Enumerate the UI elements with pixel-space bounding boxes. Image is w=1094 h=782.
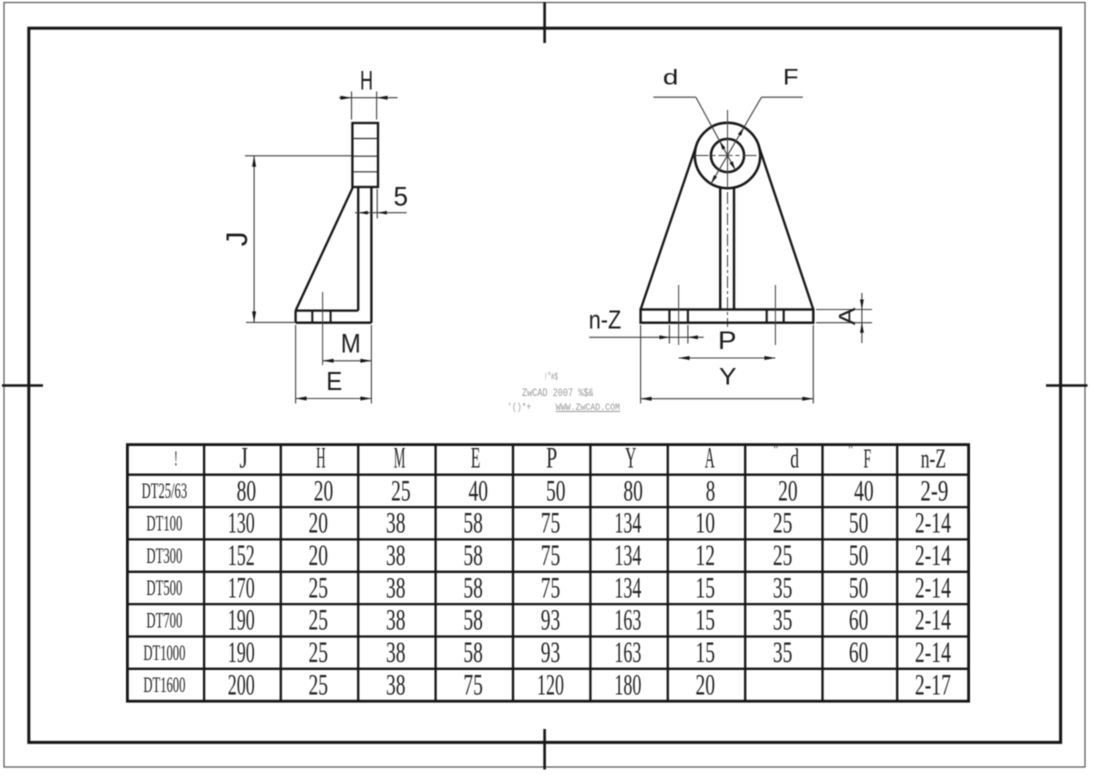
svg-text:38: 38 xyxy=(386,539,406,572)
svg-text:20: 20 xyxy=(309,507,329,540)
svg-text:DT300: DT300 xyxy=(146,543,182,568)
svg-text:120: 120 xyxy=(537,668,564,701)
svg-text:Y: Y xyxy=(719,364,737,391)
svg-text:35: 35 xyxy=(773,636,793,669)
svg-text:20: 20 xyxy=(309,539,329,572)
svg-text:60: 60 xyxy=(849,636,869,669)
svg-text:134: 134 xyxy=(614,571,641,604)
svg-text:Y: Y xyxy=(625,442,636,475)
svg-text:58: 58 xyxy=(463,636,483,669)
svg-text:M: M xyxy=(341,328,361,358)
svg-text:40: 40 xyxy=(469,474,489,507)
svg-text:DT100: DT100 xyxy=(146,511,182,536)
svg-text:": " xyxy=(848,442,853,459)
svg-text:DT500: DT500 xyxy=(146,575,182,600)
svg-text:": " xyxy=(773,442,778,459)
svg-text:2-14: 2-14 xyxy=(915,636,951,669)
svg-text:190: 190 xyxy=(228,604,255,637)
svg-text:35: 35 xyxy=(773,571,793,604)
svg-text:J: J xyxy=(221,231,254,246)
svg-text:38: 38 xyxy=(386,636,406,669)
svg-text:58: 58 xyxy=(463,571,483,604)
svg-text:2-14: 2-14 xyxy=(915,571,951,604)
svg-text:152: 152 xyxy=(228,539,255,572)
svg-text:10: 10 xyxy=(696,507,716,540)
svg-text:80: 80 xyxy=(237,474,257,507)
svg-text:P: P xyxy=(718,327,737,355)
svg-text:190: 190 xyxy=(228,636,255,669)
svg-text:25: 25 xyxy=(309,604,329,637)
svg-text:20: 20 xyxy=(778,474,798,507)
svg-text:38: 38 xyxy=(386,668,406,701)
svg-text:5: 5 xyxy=(393,181,408,211)
svg-text:n-Z: n-Z xyxy=(589,305,622,335)
svg-text:25: 25 xyxy=(309,668,329,701)
svg-text:P: P xyxy=(546,442,557,475)
svg-text:50: 50 xyxy=(849,571,869,604)
svg-text:50: 50 xyxy=(849,539,869,572)
svg-text:2-14: 2-14 xyxy=(915,604,951,637)
svg-text:75: 75 xyxy=(541,507,561,540)
svg-text:35: 35 xyxy=(773,604,793,637)
svg-text:F: F xyxy=(863,444,871,474)
svg-text:H: H xyxy=(316,442,326,475)
svg-text:180: 180 xyxy=(614,668,641,701)
svg-text:58: 58 xyxy=(463,507,483,540)
svg-text:!: ! xyxy=(174,447,178,471)
svg-text:15: 15 xyxy=(696,636,716,669)
svg-text:d: d xyxy=(663,67,679,90)
svg-text:n-Z: n-Z xyxy=(921,444,946,474)
svg-text:E: E xyxy=(326,366,342,396)
svg-text:163: 163 xyxy=(614,604,641,637)
svg-text:DT700: DT700 xyxy=(146,608,182,633)
svg-text:M: M xyxy=(394,442,406,475)
svg-text:20: 20 xyxy=(696,668,716,701)
svg-text:58: 58 xyxy=(463,604,483,637)
svg-text:58: 58 xyxy=(463,539,483,572)
svg-text:!"#$: !"#$ xyxy=(544,372,558,384)
svg-text:15: 15 xyxy=(696,604,716,637)
svg-text:DT1600: DT1600 xyxy=(143,672,185,697)
svg-text:50: 50 xyxy=(849,507,869,540)
svg-text:WWW.ZwCAD.COM: WWW.ZwCAD.COM xyxy=(556,403,620,414)
svg-text:2-17: 2-17 xyxy=(915,668,951,701)
svg-text:75: 75 xyxy=(541,571,561,604)
svg-text:d: d xyxy=(790,444,799,474)
svg-text:25: 25 xyxy=(773,539,793,572)
svg-text:50: 50 xyxy=(546,474,566,507)
svg-text:20: 20 xyxy=(314,474,334,507)
svg-text:93: 93 xyxy=(541,636,561,669)
svg-text:170: 170 xyxy=(228,571,255,604)
svg-text:E: E xyxy=(471,442,481,475)
svg-text:8: 8 xyxy=(706,474,716,507)
svg-text:38: 38 xyxy=(386,571,406,604)
svg-text:38: 38 xyxy=(386,604,406,637)
svg-text:25: 25 xyxy=(309,571,329,604)
svg-text:80: 80 xyxy=(623,474,643,507)
svg-text:25: 25 xyxy=(773,507,793,540)
svg-text:15: 15 xyxy=(696,571,716,604)
svg-text:25: 25 xyxy=(391,474,411,507)
svg-text:163: 163 xyxy=(614,636,641,669)
svg-text:A: A xyxy=(834,307,860,325)
svg-text:ZwCAD 2007 %$&: ZwCAD 2007 %$& xyxy=(522,388,594,400)
svg-text:F: F xyxy=(783,65,799,90)
svg-text:A: A xyxy=(705,442,715,475)
svg-text:J: J xyxy=(240,442,249,475)
svg-text:75: 75 xyxy=(541,539,561,572)
svg-text:2-14: 2-14 xyxy=(915,539,951,572)
svg-text:2-9: 2-9 xyxy=(920,474,948,507)
svg-text:200: 200 xyxy=(228,668,255,701)
svg-text:25: 25 xyxy=(309,636,329,669)
svg-text:93: 93 xyxy=(541,604,561,637)
svg-text:DT1000: DT1000 xyxy=(143,640,185,665)
svg-text:DT25/63: DT25/63 xyxy=(142,478,188,503)
svg-text:40: 40 xyxy=(854,474,874,507)
svg-text:12: 12 xyxy=(696,539,716,572)
svg-text:134: 134 xyxy=(614,539,641,572)
svg-text:38: 38 xyxy=(386,507,406,540)
svg-text:2-14: 2-14 xyxy=(915,507,951,540)
svg-text:130: 130 xyxy=(228,507,255,540)
svg-text:60: 60 xyxy=(849,604,869,637)
svg-text:'()*+: '()*+ xyxy=(507,402,531,414)
svg-text:H: H xyxy=(360,65,373,95)
svg-text:75: 75 xyxy=(463,668,483,701)
svg-text:134: 134 xyxy=(614,507,641,540)
